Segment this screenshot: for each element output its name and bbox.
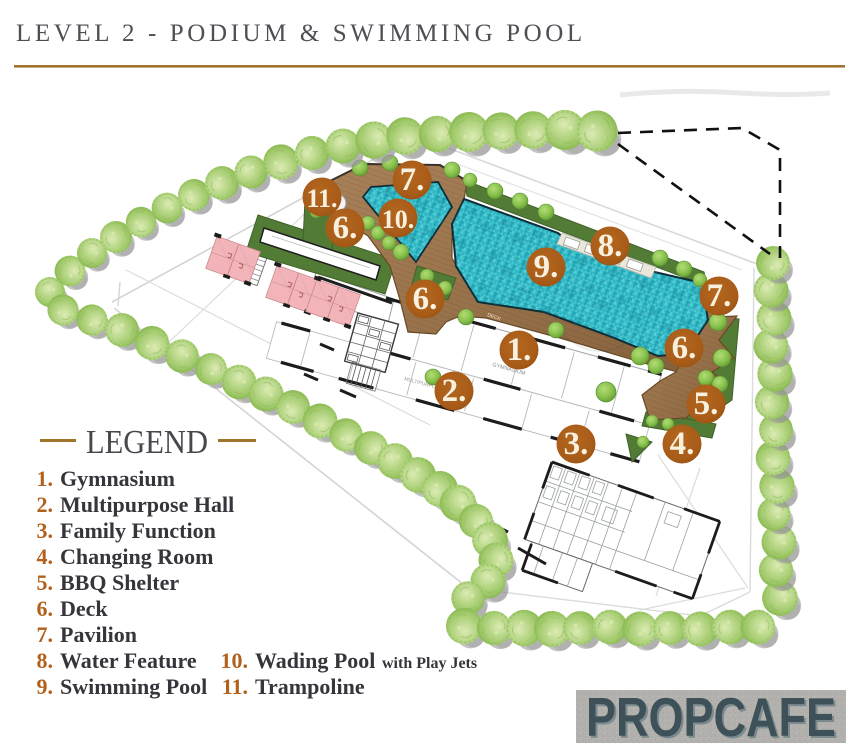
svg-text:LEGEND: LEGEND [86,424,208,461]
svg-text:7.: 7. [37,622,54,647]
svg-text:Changing Room: Changing Room [60,544,213,569]
svg-text:3.: 3. [37,518,54,543]
svg-text:with Play Jets: with Play Jets [382,655,477,672]
svg-text:BBQ Shelter: BBQ Shelter [60,570,179,595]
svg-text:Deck: Deck [60,596,108,621]
svg-text:1.: 1. [37,466,54,491]
svg-text:11.: 11. [306,184,337,213]
svg-text:Water Feature: Water Feature [60,648,197,673]
svg-text:3.: 3. [564,426,589,462]
svg-text:7.: 7. [400,162,425,198]
svg-text:Trampoline: Trampoline [255,674,365,699]
svg-text:Gymnasium: Gymnasium [60,466,175,491]
svg-text:4.: 4. [37,544,54,569]
svg-text:6.: 6. [672,330,697,366]
svg-text:6.: 6. [333,210,358,246]
svg-text:10.: 10. [221,648,249,673]
svg-text:Pavilion: Pavilion [60,622,137,647]
svg-text:2.: 2. [37,492,54,517]
svg-text:8.: 8. [598,228,623,264]
svg-text:2.: 2. [442,373,467,409]
svg-text:LEVEL 2 - PODIUM & SWIMMING PO: LEVEL 2 - PODIUM & SWIMMING POOL [16,20,586,47]
svg-text:6.: 6. [413,281,438,317]
svg-text:7.: 7. [707,278,732,314]
svg-text:Family Function: Family Function [60,518,216,543]
svg-text:9.: 9. [534,249,559,285]
svg-text:9.: 9. [37,674,54,699]
svg-text:Wading Pool: Wading Pool [255,648,375,673]
svg-text:5.: 5. [37,570,54,595]
svg-text:1.: 1. [507,332,532,368]
svg-text:5.: 5. [694,386,719,422]
svg-text:11.: 11. [222,674,248,699]
svg-text:6.: 6. [37,596,54,621]
svg-text:Multipurpose Hall: Multipurpose Hall [60,492,234,517]
svg-text:8.: 8. [37,648,54,673]
svg-text:10.: 10. [382,205,415,234]
svg-text:PROPCAFE: PROPCAFE [586,686,836,743]
svg-text:Swimming Pool: Swimming Pool [60,674,207,699]
svg-text:4.: 4. [670,426,695,462]
